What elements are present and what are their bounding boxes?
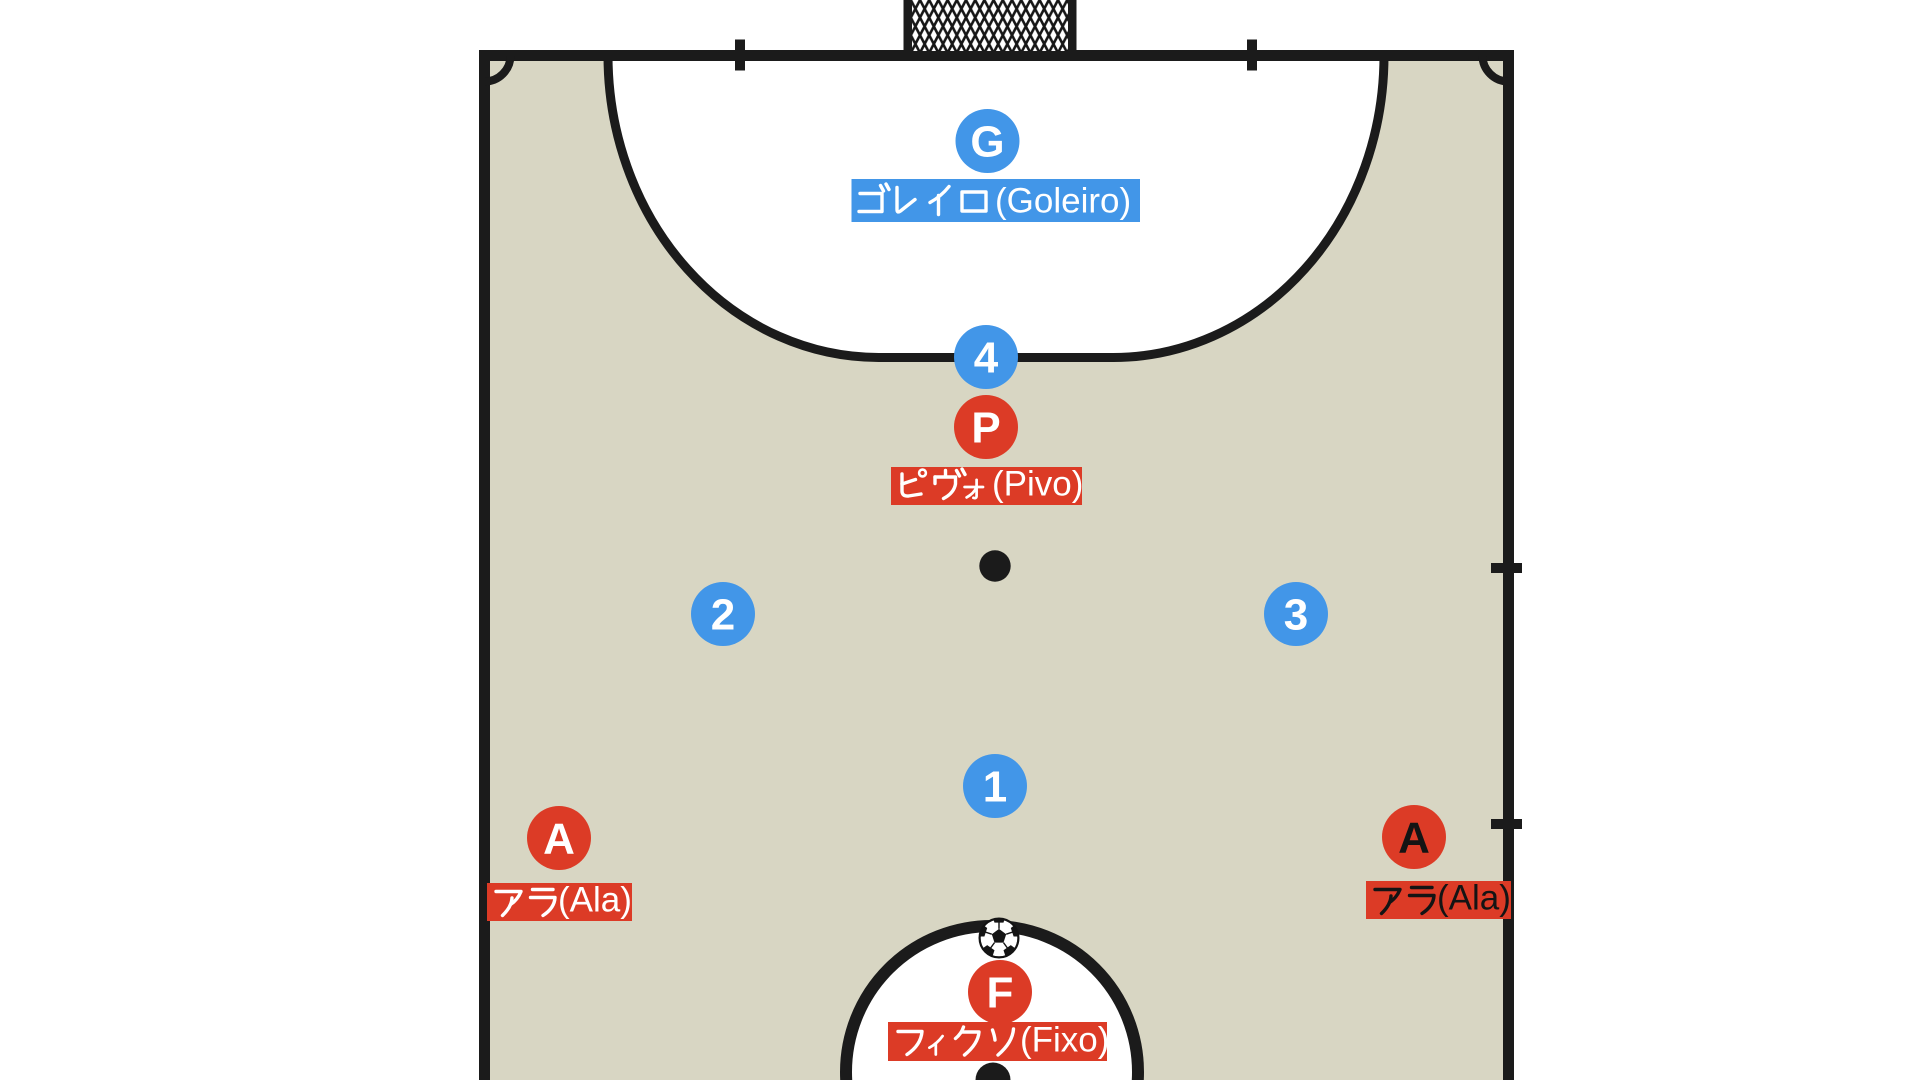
svg-text:(Fixo): (Fixo) [1020, 1021, 1109, 1060]
svg-text:F: F [987, 969, 1014, 1018]
svg-text:2: 2 [711, 591, 735, 640]
svg-text:P: P [971, 404, 1000, 453]
svg-text:(Pivo): (Pivo) [992, 465, 1083, 504]
svg-text:1: 1 [983, 763, 1007, 812]
svg-text:3: 3 [1284, 591, 1308, 640]
svg-text:(Ala): (Ala) [1437, 879, 1511, 918]
svg-text:A: A [1398, 814, 1430, 863]
svg-text:G: G [970, 118, 1004, 167]
svg-text:4: 4 [974, 334, 999, 383]
svg-text:(Goleiro): (Goleiro) [995, 182, 1131, 221]
svg-text:(Ala): (Ala) [558, 881, 632, 920]
svg-text:A: A [543, 815, 575, 864]
